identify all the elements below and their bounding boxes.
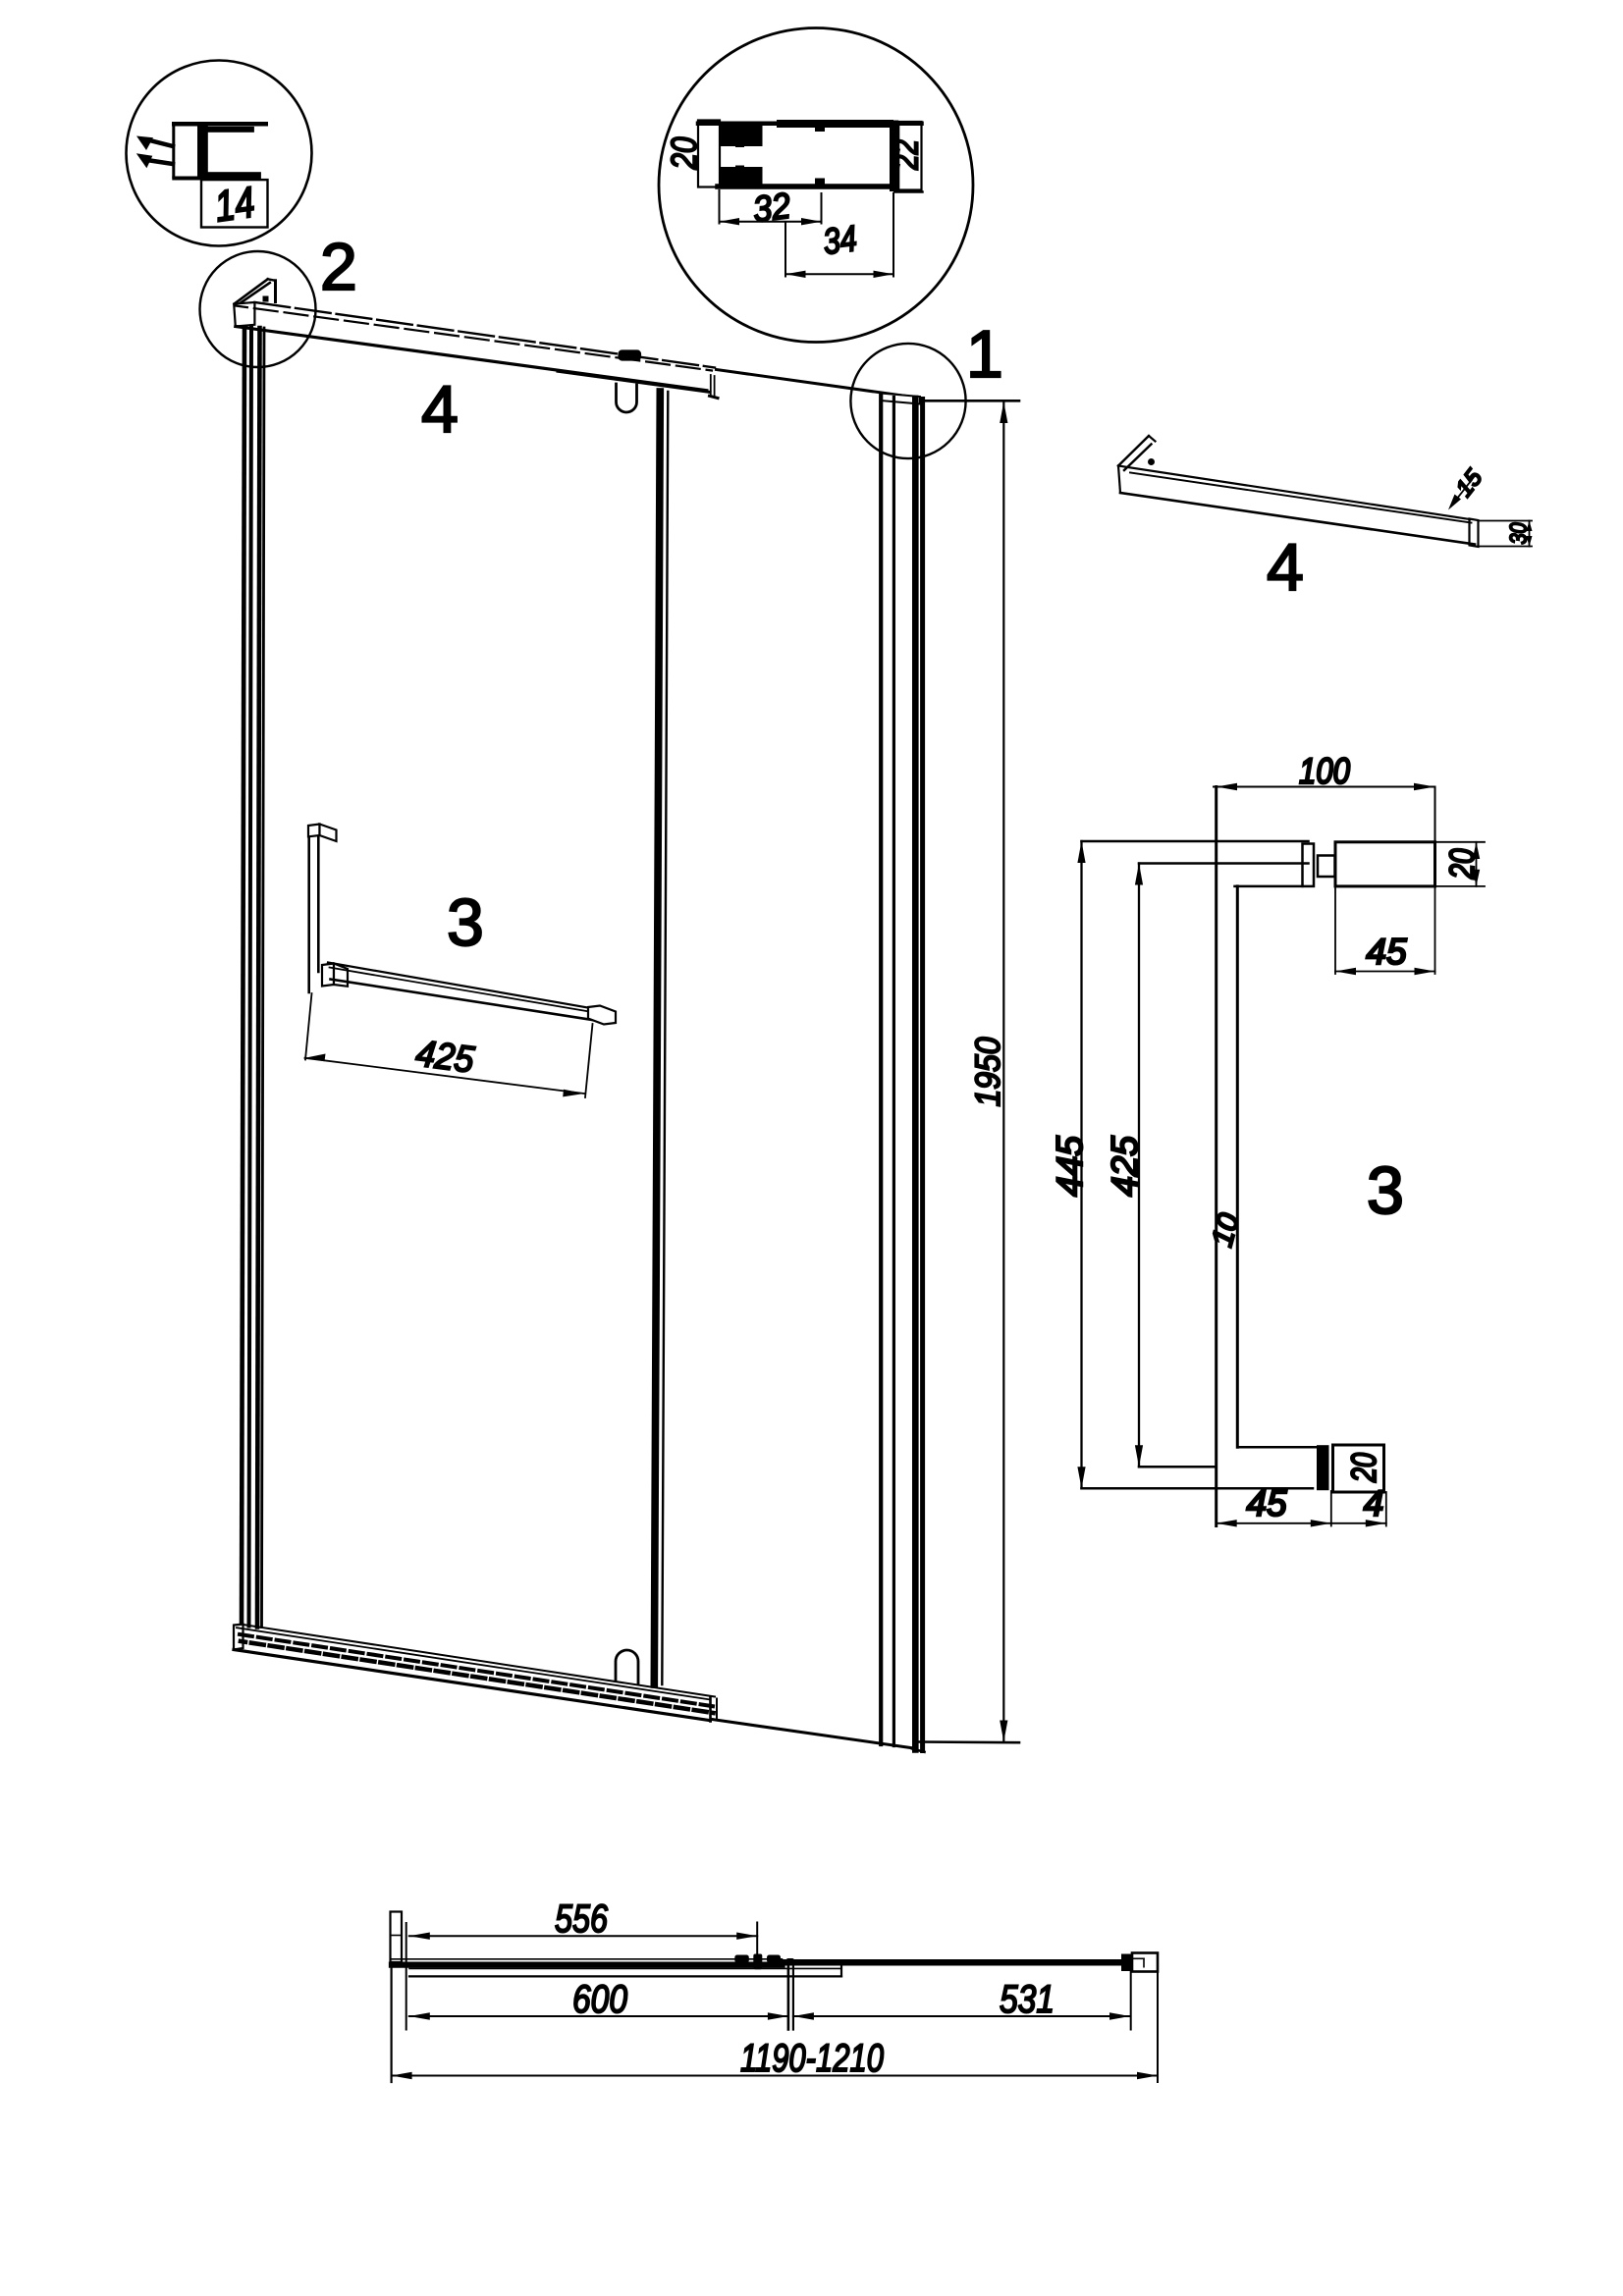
svg-text:2: 2 (320, 230, 357, 304)
svg-text:14: 14 (212, 178, 257, 231)
svg-text:3: 3 (447, 885, 484, 960)
svg-text:22: 22 (886, 139, 926, 171)
svg-text:425: 425 (413, 1033, 477, 1081)
svg-text:45: 45 (1247, 1483, 1287, 1523)
svg-text:32: 32 (751, 186, 793, 230)
svg-text:556: 556 (555, 1897, 609, 1941)
svg-text:4: 4 (421, 372, 459, 447)
svg-text:600: 600 (572, 1978, 627, 2021)
svg-text:45: 45 (1366, 932, 1407, 972)
svg-text:531: 531 (1000, 1978, 1055, 2021)
svg-text:445: 445 (1050, 1136, 1090, 1197)
svg-text:34: 34 (821, 218, 859, 262)
svg-text:20: 20 (1345, 1453, 1383, 1483)
svg-text:100: 100 (1299, 751, 1350, 791)
svg-text:10: 10 (1206, 1209, 1246, 1250)
svg-text:425: 425 (1105, 1136, 1145, 1197)
svg-text:4: 4 (1267, 530, 1304, 605)
svg-text:4: 4 (1364, 1483, 1384, 1523)
svg-text:1: 1 (966, 317, 1003, 392)
svg-text:20: 20 (664, 137, 704, 171)
svg-text:1950: 1950 (969, 1037, 1007, 1106)
svg-text:3: 3 (1367, 1153, 1404, 1228)
svg-text:30: 30 (1506, 522, 1533, 545)
svg-text:20: 20 (1443, 848, 1482, 880)
svg-text:1190-1210: 1190-1210 (740, 2037, 884, 2080)
